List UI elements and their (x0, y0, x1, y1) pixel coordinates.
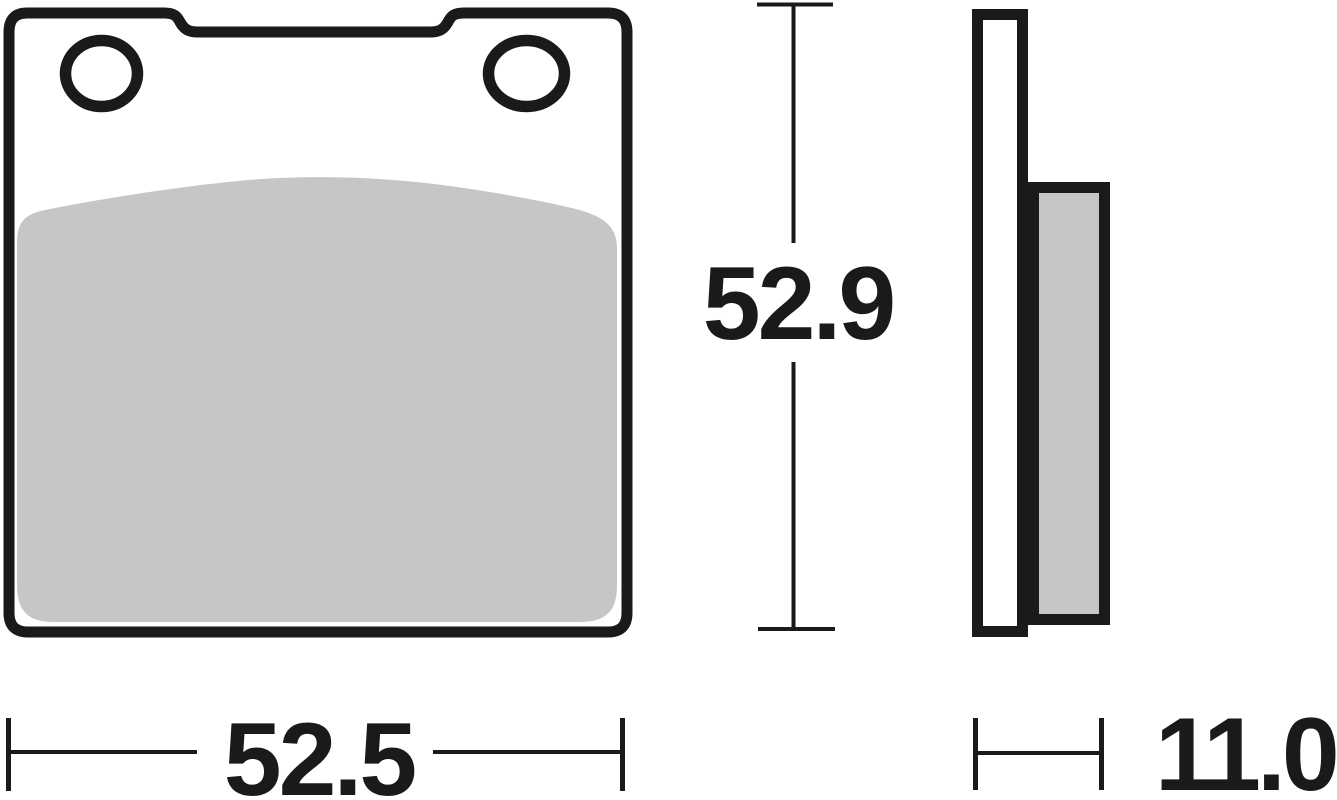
brake-pad-technical-drawing: 52.9 52.5 11.0 (0, 0, 1337, 800)
front-view-friction-material (17, 177, 617, 622)
thickness-dimension-label: 11.0 (1155, 703, 1336, 800)
height-dimension-label: 52.9 (700, 252, 896, 356)
mounting-hole-right-icon (489, 41, 565, 107)
side-view-friction-material (1034, 188, 1105, 620)
thickness-dimension (975, 718, 1102, 790)
side-view-backplate (978, 15, 1023, 632)
mounting-hole-left-icon (66, 41, 138, 107)
width-dimension-label: 52.5 (221, 708, 417, 800)
technical-drawing-canvas (0, 0, 1337, 800)
